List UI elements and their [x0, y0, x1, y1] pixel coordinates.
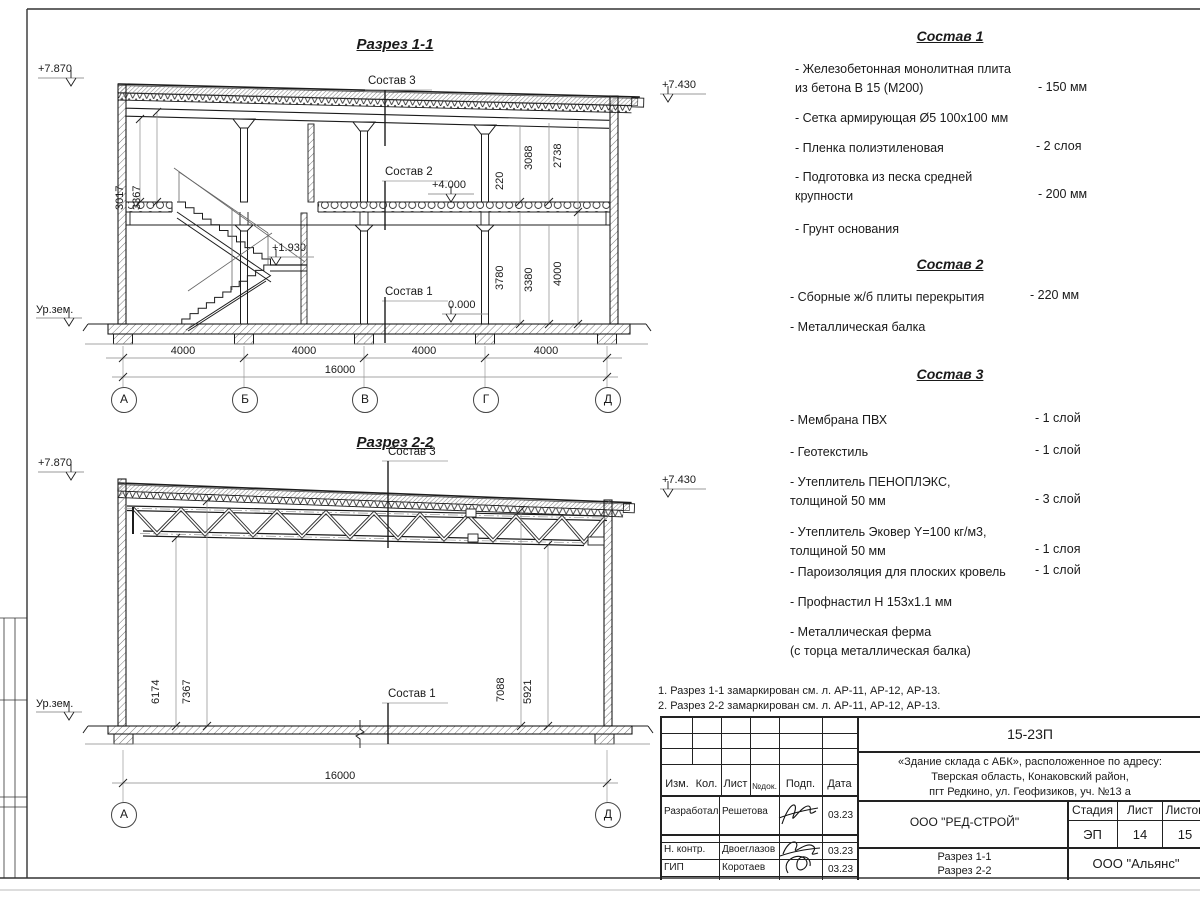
doc-number: 15-23П — [857, 726, 1200, 742]
role-developer: Разработал — [664, 806, 719, 817]
level-7430: +7.430 — [662, 79, 696, 92]
name-ncontrol: Двоеглазов — [722, 844, 779, 855]
sostav2-ref: Состав 2 — [385, 166, 433, 178]
sostav1-ref: Состав 1 — [385, 286, 433, 298]
stage-value: ЭП — [1068, 827, 1117, 842]
level-7870: +7.870 — [38, 63, 72, 76]
composition-item: - Железобетонная монолитная плита из бет… — [795, 60, 1011, 98]
composition-item: - Утеплитель Эковер Y=100 кг/м3, толщино… — [790, 523, 986, 561]
composition-1-title: Состав 1 — [850, 28, 1050, 44]
composition-value: - 1 слой — [1035, 411, 1081, 425]
date-developer: 03.23 — [824, 810, 857, 821]
sostav3-ref: Состав 3 — [368, 75, 416, 87]
section-1-1-drawing — [36, 70, 706, 387]
composition-item: - Мембрана ПВХ — [790, 411, 887, 430]
composition-value: - 1 слой — [1035, 563, 1081, 577]
name-gip: Коротаев — [722, 862, 779, 873]
col-ndok: №док. — [750, 781, 779, 791]
axis-bubble-v: В — [352, 387, 378, 413]
project-address: «Здание склада с АБК», расположенное по … — [862, 755, 1198, 800]
contractor: ООО "Альянс" — [1069, 856, 1200, 871]
sostav3-ref-s2: Состав 3 — [388, 446, 436, 458]
axis-bubble-b: Б — [232, 387, 258, 413]
stage-label: Стадия — [1068, 803, 1117, 817]
col-list: Лист — [721, 778, 750, 790]
level-0000: 0.000 — [448, 299, 476, 312]
span-dim: 4000 — [163, 345, 203, 357]
composition-value: - 150 мм — [1038, 80, 1087, 94]
composition-value: - 1 слой — [1035, 443, 1081, 457]
axis-bubble-g: Г — [473, 387, 499, 413]
ground-level-label: Ур.зем. — [36, 304, 73, 317]
date-ncontrol: 03.23 — [824, 846, 857, 857]
dim-3088: 3088 — [523, 146, 536, 170]
axis-bubble-d-s2: Д — [595, 802, 621, 828]
span-dim: 4000 — [526, 345, 566, 357]
composition-item: - Металлическая балка — [790, 318, 925, 337]
drawing-sheet: Разрез 1-1 +7.870 +7.430 Ур.зем. Состав … — [0, 0, 1200, 900]
composition-item: - Металлическая ферма (с торца металличе… — [790, 623, 971, 661]
level-4000: +4.000 — [432, 179, 466, 192]
axis-bubble-a: А — [111, 387, 137, 413]
axis-bubble-a-s2: А — [111, 802, 137, 828]
col-data: Дата — [822, 778, 857, 790]
level-1930: +1.930 — [272, 242, 306, 255]
composition-2-title: Состав 2 — [850, 256, 1050, 272]
composition-item: - Утеплитель ПЕНОПЛЭКС, толщиной 50 мм — [790, 473, 950, 511]
composition-item: - Пароизоляция для плоских кровель — [790, 563, 1006, 582]
note-2: 2. Разрез 2-2 замаркирован см. л. АР-11,… — [658, 699, 940, 714]
dim-6174: 6174 — [150, 680, 163, 704]
composition-item: - Грунт основания — [795, 220, 899, 239]
dim-5921: 5921 — [522, 680, 535, 704]
composition-value: - 1 слоя — [1035, 542, 1080, 556]
total-dim-s2: 16000 — [316, 770, 364, 782]
section-1-title: Разрез 1-1 — [320, 36, 470, 53]
dim-3017: 3017 — [114, 186, 127, 210]
dim-3780: 3780 — [494, 266, 507, 290]
axis-bubble-d: Д — [595, 387, 621, 413]
title-block: 15-23П «Здание склада с АБК», расположен… — [660, 716, 1200, 880]
sostav1-ref-s2: Состав 1 — [388, 688, 436, 700]
role-gip: ГИП — [664, 862, 719, 873]
leader-lines — [365, 90, 448, 343]
composition-3-title: Состав 3 — [850, 366, 1050, 382]
date-gip: 03.23 — [824, 864, 857, 875]
sheets-label: Листов — [1163, 803, 1200, 817]
composition-item: - Геотекстиль — [790, 443, 868, 462]
composition-item: - Сетка армирующая Ø5 100х100 мм — [795, 109, 1008, 128]
composition-value: - 3 слой — [1035, 492, 1081, 506]
sheet-content: Разрез 1-1 Разрез 2-2 — [862, 850, 1067, 878]
dim-3380: 3380 — [523, 268, 536, 292]
name-developer: Решетова — [722, 806, 779, 817]
sheets-value: 15 — [1163, 827, 1200, 842]
span-dim: 4000 — [284, 345, 324, 357]
dim-2738: 2738 — [552, 144, 565, 168]
note-1: 1. Разрез 1-1 замаркирован см. л. АР-11,… — [658, 684, 940, 699]
dim-3367: 3367 — [131, 186, 144, 210]
col-izm: Изм. — [662, 778, 692, 790]
dim-4000-right: 4000 — [552, 262, 565, 286]
composition-value: - 220 мм — [1030, 288, 1079, 302]
col-kol: Кол. — [692, 778, 721, 790]
dim-220: 220 — [494, 172, 507, 190]
level-7870-s2: +7.870 — [38, 457, 72, 470]
level-7430-s2: +7.430 — [662, 474, 696, 487]
span-dim: 4000 — [404, 345, 444, 357]
composition-value: - 200 мм — [1038, 187, 1087, 201]
sheet-label: Лист — [1118, 803, 1162, 817]
total-dim: 16000 — [316, 364, 364, 376]
section-2-2-drawing — [36, 461, 706, 802]
sheet-value: 14 — [1118, 827, 1162, 842]
dim-7367: 7367 — [181, 680, 194, 704]
composition-item: - Профнастил Н 153х1.1 мм — [790, 593, 952, 612]
ground-level-label-s2: Ур.зем. — [36, 698, 73, 711]
composition-item: - Подготовка из песка средней крупности — [795, 168, 972, 206]
design-org: ООО "РЕД-СТРОЙ" — [862, 815, 1067, 829]
composition-value: - 2 слоя — [1036, 139, 1081, 153]
col-podp: Подп. — [779, 778, 822, 790]
role-ncontrol: Н. контр. — [664, 844, 719, 855]
composition-item: - Сборные ж/б плиты перекрытия — [790, 288, 984, 307]
composition-item: - Пленка полиэтиленовая — [795, 139, 944, 158]
dim-7088: 7088 — [495, 678, 508, 702]
